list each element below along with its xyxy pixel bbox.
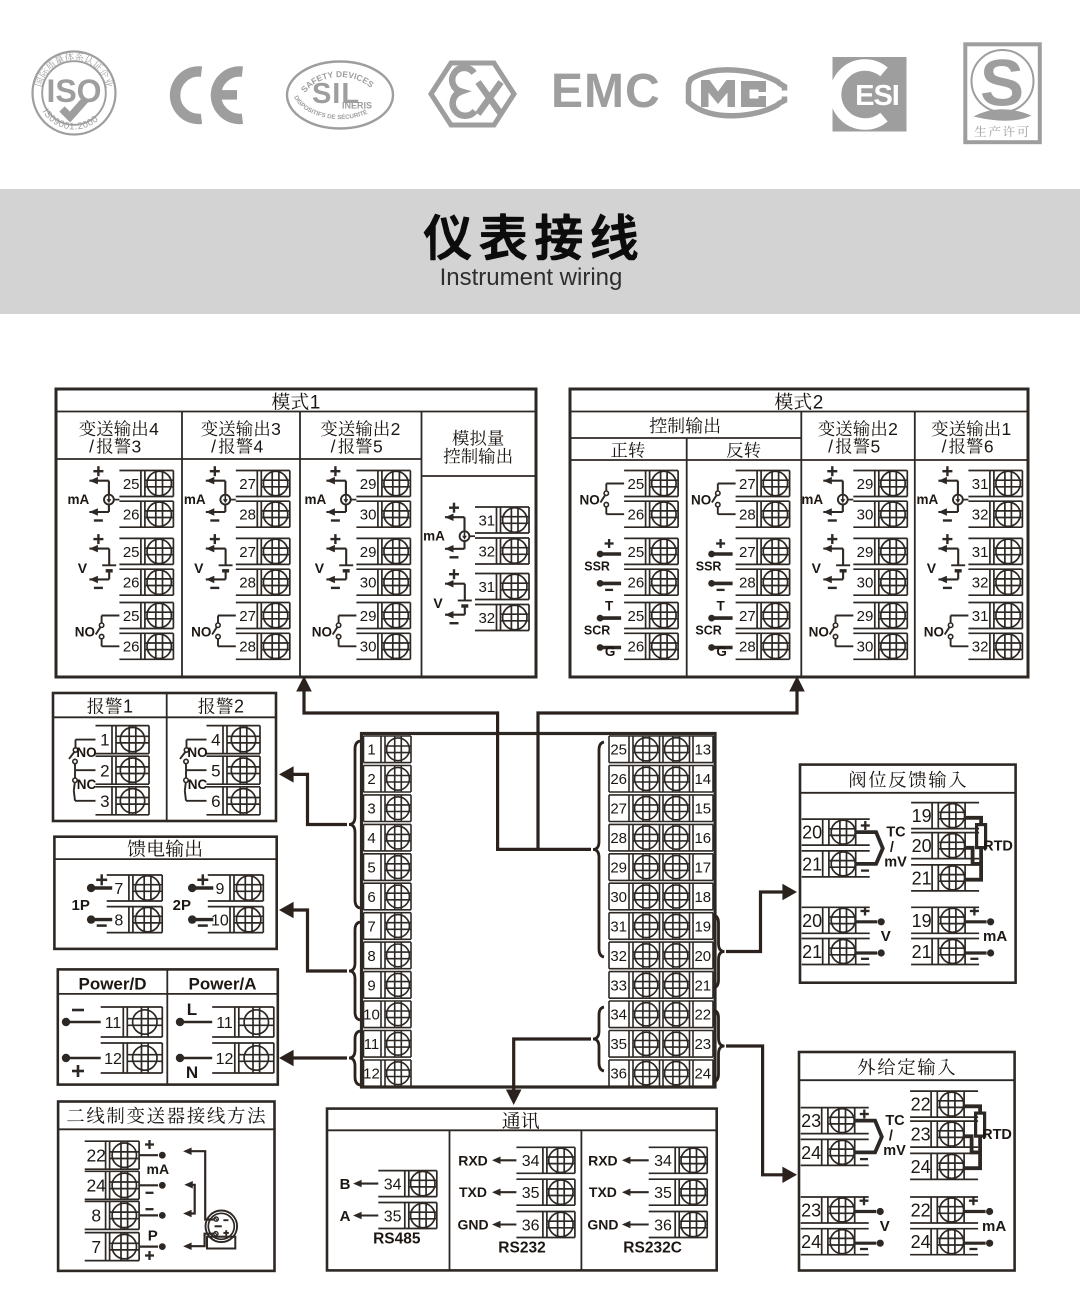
svg-text:30: 30 [610,889,627,906]
svg-text:SSR: SSR [696,559,722,573]
svg-text:A: A [340,1208,351,1225]
svg-text:32: 32 [972,639,989,656]
svg-text:/: / [942,436,947,456]
svg-text:mA: mA [982,1218,1006,1235]
svg-text:32: 32 [972,507,989,524]
svg-text:1: 1 [123,697,133,717]
svg-text:18: 18 [694,889,711,906]
svg-text:36: 36 [522,1217,540,1234]
svg-text:20: 20 [912,836,932,856]
svg-text:ISO: ISO [46,73,101,109]
svg-text:14: 14 [694,771,711,788]
svg-text:36: 36 [610,1066,627,1083]
svg-text:RS485: RS485 [373,1231,421,1248]
svg-text:11: 11 [105,1015,122,1032]
svg-text:/: / [889,1128,893,1144]
svg-text:/: / [211,436,216,456]
svg-text:ESI: ESI [855,80,899,112]
svg-text:mA: mA [801,492,823,507]
svg-text:25: 25 [628,544,645,561]
svg-text:SSR: SSR [584,559,610,573]
svg-text:30: 30 [360,639,377,656]
svg-text:NO: NO [691,492,711,507]
svg-text:28: 28 [739,507,756,524]
svg-text:27: 27 [239,544,256,561]
svg-text:34: 34 [610,1007,627,1024]
svg-text:25: 25 [123,544,140,561]
svg-text:7: 7 [367,918,375,935]
svg-text:INERIS: INERIS [342,101,372,111]
svg-text:NO: NO [75,624,95,639]
svg-text:35: 35 [384,1208,402,1225]
svg-text:mA: mA [147,1161,170,1177]
svg-text:30: 30 [857,575,874,592]
svg-text:12: 12 [104,1051,122,1068]
svg-text:27: 27 [610,801,627,818]
svg-text:27: 27 [739,544,756,561]
svg-text:6: 6 [367,889,375,906]
svg-text:RTD: RTD [983,839,1013,855]
svg-text:24: 24 [911,1157,931,1177]
svg-text:13: 13 [694,742,711,759]
svg-text:24: 24 [911,1232,931,1252]
svg-text:5: 5 [871,436,881,456]
svg-text:GND: GND [587,1217,618,1233]
svg-text:36: 36 [654,1217,672,1234]
svg-text:TC: TC [886,825,906,841]
svg-text:24: 24 [801,1143,821,1163]
svg-text:GND: GND [457,1217,488,1233]
svg-text:28: 28 [739,639,756,656]
svg-text:2: 2 [391,419,401,439]
svg-text:mV: mV [883,1143,906,1159]
svg-text:30: 30 [360,575,377,592]
svg-text:28: 28 [239,639,256,656]
svg-text:28: 28 [739,575,756,592]
svg-text:V: V [433,595,443,611]
svg-text:V: V [194,560,204,576]
svg-text:27: 27 [739,476,756,493]
svg-text:RXD: RXD [588,1152,618,1168]
svg-text:26: 26 [123,639,140,656]
svg-text:/: / [828,436,833,456]
svg-text:34: 34 [654,1153,672,1170]
svg-text:2: 2 [100,761,109,780]
svg-text:RS232C: RS232C [623,1240,682,1257]
svg-text:8: 8 [91,1206,101,1226]
svg-text:17: 17 [694,860,711,877]
svg-text:4: 4 [211,731,220,750]
svg-text:RTD: RTD [982,1127,1012,1143]
svg-text:2: 2 [888,419,898,439]
svg-text:25: 25 [610,742,627,759]
svg-text:V: V [315,560,325,576]
svg-text:22: 22 [911,1201,931,1221]
svg-text:24: 24 [801,1232,821,1252]
svg-text:33: 33 [610,977,627,994]
svg-text:23: 23 [911,1125,931,1145]
svg-text:G: G [716,644,727,659]
svg-text:26: 26 [123,575,140,592]
svg-text:16: 16 [694,830,711,847]
svg-text:34: 34 [522,1153,540,1170]
svg-text:32: 32 [478,610,495,627]
svg-text:27: 27 [739,608,756,625]
svg-text:20: 20 [694,948,711,965]
svg-text:35: 35 [654,1185,672,1202]
svg-text:mV: mV [884,854,907,870]
svg-text:/: / [89,436,94,456]
svg-text:25: 25 [628,476,645,493]
svg-text:26: 26 [628,507,645,524]
svg-text:11: 11 [216,1015,233,1032]
svg-text:4: 4 [367,830,375,847]
svg-text:9: 9 [215,881,224,898]
svg-text:1: 1 [1002,419,1012,439]
svg-text:TC: TC [885,1113,905,1129]
svg-text:35: 35 [522,1185,540,1202]
svg-text:2: 2 [367,771,375,788]
svg-text:NC: NC [188,777,208,792]
svg-text:S: S [980,46,1024,120]
svg-text:22: 22 [911,1095,931,1115]
svg-text:29: 29 [360,544,377,561]
svg-text:28: 28 [239,507,256,524]
svg-text:1: 1 [100,731,109,750]
svg-text:31: 31 [972,476,989,493]
svg-text:32: 32 [478,543,495,560]
svg-text:NO: NO [809,624,829,639]
svg-text:2P: 2P [173,897,191,914]
svg-text:31: 31 [478,512,495,529]
svg-text:25: 25 [628,608,645,625]
svg-text:10: 10 [211,912,229,929]
svg-text:N: N [186,1063,198,1082]
svg-text:24: 24 [694,1066,711,1083]
svg-text:2: 2 [813,392,824,413]
svg-text:3: 3 [367,801,375,818]
svg-text:19: 19 [694,918,711,935]
svg-text:SCR: SCR [584,623,610,637]
svg-text:22: 22 [86,1146,105,1166]
svg-text:V: V [78,560,88,576]
svg-text:30: 30 [360,507,377,524]
svg-text:21: 21 [912,942,932,962]
svg-text:V: V [927,560,937,576]
svg-text:5: 5 [367,860,375,877]
svg-text:12: 12 [363,1066,380,1083]
svg-text:T: T [716,599,725,614]
svg-text:Instrument wiring: Instrument wiring [440,264,623,291]
svg-text:25: 25 [123,608,140,625]
svg-text:1P: 1P [72,897,90,914]
svg-text:/: / [331,436,336,456]
svg-text:21: 21 [802,942,822,962]
svg-text:Power/D: Power/D [78,975,146,994]
svg-text:32: 32 [610,948,627,965]
svg-text:mA: mA [917,492,939,507]
svg-text:NO: NO [924,624,944,639]
svg-text:6: 6 [984,436,994,456]
svg-text:19: 19 [912,806,932,826]
svg-text:T: T [605,599,614,614]
svg-text:mA: mA [184,492,206,507]
svg-text:34: 34 [384,1176,402,1193]
svg-text:35: 35 [610,1036,627,1053]
svg-text:NO: NO [312,624,332,639]
svg-text:22: 22 [694,1007,711,1024]
svg-text:27: 27 [239,476,256,493]
svg-text:27: 27 [239,608,256,625]
svg-text:NO: NO [579,492,599,507]
svg-text:29: 29 [857,544,874,561]
svg-text:NO: NO [187,745,207,760]
svg-text:G: G [605,644,616,659]
svg-text:31: 31 [972,608,989,625]
svg-text:2: 2 [234,697,244,717]
svg-text:NO: NO [191,624,211,639]
svg-text:TXD: TXD [459,1184,487,1200]
svg-text:6: 6 [211,792,220,811]
svg-text:29: 29 [857,608,874,625]
svg-text:RXD: RXD [458,1152,488,1168]
svg-text:7: 7 [114,881,123,898]
svg-text:7: 7 [91,1237,101,1257]
svg-text:3: 3 [100,792,109,811]
svg-text:mA: mA [983,928,1007,945]
svg-text:11: 11 [364,1036,380,1053]
svg-text:30: 30 [857,639,874,656]
svg-text:V: V [812,560,822,576]
svg-text:28: 28 [239,575,256,592]
svg-text:21: 21 [802,854,822,874]
svg-text:1: 1 [310,392,321,413]
svg-text:8: 8 [367,948,375,965]
svg-text:26: 26 [628,639,645,656]
svg-text:20: 20 [802,823,822,843]
svg-text:TXD: TXD [589,1184,617,1200]
svg-text:L: L [187,1000,197,1019]
svg-text:RS232: RS232 [498,1240,545,1257]
svg-text:29: 29 [857,476,874,493]
svg-text:5: 5 [211,761,220,780]
svg-text:4: 4 [149,419,159,439]
svg-text:V: V [881,928,891,945]
svg-text:SCR: SCR [695,623,721,637]
svg-text:31: 31 [478,579,495,596]
svg-text:23: 23 [694,1036,711,1053]
svg-text:32: 32 [972,575,989,592]
svg-text:26: 26 [610,771,627,788]
svg-text:31: 31 [972,544,989,561]
svg-text:25: 25 [123,476,140,493]
svg-text:21: 21 [694,977,711,994]
svg-text:26: 26 [123,507,140,524]
svg-text:29: 29 [360,608,377,625]
svg-text:NC: NC [77,777,97,792]
svg-text:4: 4 [254,436,264,456]
svg-text:24: 24 [86,1176,106,1196]
svg-text:29: 29 [610,860,627,877]
svg-text:30: 30 [857,507,874,524]
svg-text:26: 26 [628,575,645,592]
svg-text:31: 31 [610,918,627,935]
svg-text:20: 20 [802,911,822,931]
svg-text:12: 12 [216,1051,234,1068]
svg-text:28: 28 [610,830,627,847]
svg-text:9: 9 [367,977,375,994]
svg-text:29: 29 [360,476,377,493]
svg-text:10: 10 [363,1007,380,1024]
svg-text:1: 1 [367,742,375,759]
svg-text:23: 23 [801,1201,821,1221]
svg-text:3: 3 [271,419,281,439]
svg-text:15: 15 [694,801,711,818]
svg-text:8: 8 [114,912,123,929]
svg-text:mA: mA [423,529,445,544]
svg-text:mA: mA [68,492,90,507]
svg-text:23: 23 [801,1111,821,1131]
svg-text:Power/A: Power/A [188,975,256,994]
svg-text:NO: NO [76,745,96,760]
svg-text:/: / [890,840,894,856]
svg-text:21: 21 [912,868,932,888]
svg-text:EMC: EMC [551,65,661,118]
svg-text:19: 19 [912,911,932,931]
svg-text:mA: mA [305,492,327,507]
svg-text:3: 3 [132,436,142,456]
svg-text:V: V [880,1218,890,1235]
svg-text:B: B [340,1176,351,1193]
svg-text:5: 5 [373,436,383,456]
svg-text:P: P [148,1228,158,1245]
